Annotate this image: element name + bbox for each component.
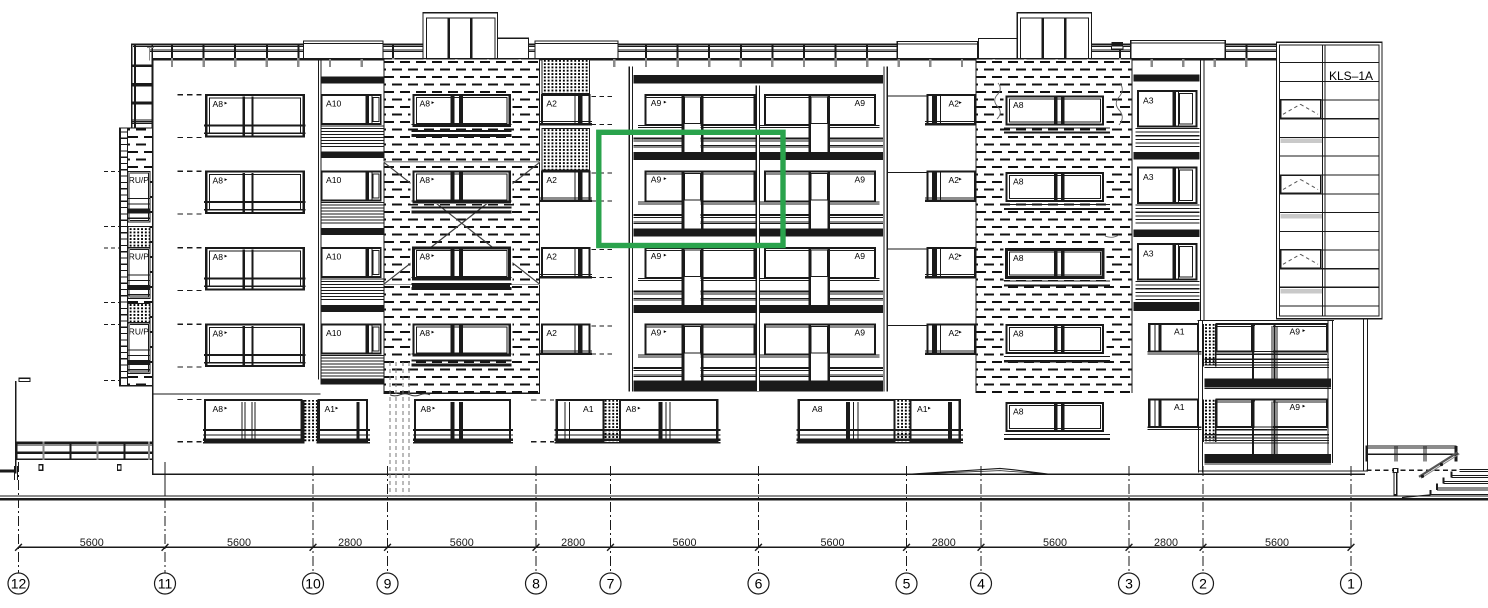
svg-text:A10: A10	[326, 252, 342, 262]
svg-text:A2: A2	[949, 99, 960, 109]
svg-text:A3: A3	[1143, 249, 1154, 259]
svg-text:A10: A10	[326, 99, 342, 109]
svg-text:A2: A2	[949, 328, 960, 338]
svg-text:▸: ▸	[928, 406, 931, 412]
svg-text:A3: A3	[1143, 96, 1154, 106]
svg-text:A8: A8	[421, 404, 432, 414]
svg-text:5600: 5600	[80, 537, 104, 549]
svg-text:A9: A9	[855, 175, 866, 185]
svg-text:11: 11	[158, 576, 173, 592]
svg-text:8: 8	[532, 576, 540, 592]
svg-text:A9: A9	[855, 328, 866, 338]
svg-text:▸: ▸	[664, 176, 667, 182]
svg-text:A8: A8	[213, 252, 224, 262]
svg-text:A8: A8	[1013, 100, 1024, 110]
svg-text:A10: A10	[326, 328, 342, 338]
svg-text:5600: 5600	[1043, 537, 1067, 549]
svg-text:A9: A9	[651, 98, 662, 108]
svg-text:3: 3	[1125, 576, 1133, 592]
svg-text:A10: A10	[326, 175, 342, 185]
svg-text:2800: 2800	[1154, 537, 1178, 549]
svg-text:2: 2	[1199, 576, 1207, 592]
svg-text:5600: 5600	[672, 537, 696, 549]
svg-text:A9: A9	[855, 98, 866, 108]
svg-text:A8: A8	[1013, 407, 1024, 417]
svg-text:2800: 2800	[338, 537, 362, 549]
svg-text:A8: A8	[213, 404, 224, 414]
svg-text:A2: A2	[546, 175, 557, 185]
svg-text:A1: A1	[1174, 327, 1185, 337]
svg-text:A8: A8	[420, 175, 431, 185]
svg-text:RU/P: RU/P	[129, 327, 149, 337]
svg-text:A9: A9	[651, 251, 662, 261]
svg-text:▸: ▸	[432, 330, 435, 336]
svg-text:A2: A2	[949, 175, 960, 185]
svg-text:A8: A8	[812, 404, 823, 414]
svg-text:A2: A2	[546, 99, 557, 109]
svg-text:5600: 5600	[1265, 537, 1289, 549]
svg-text:2800: 2800	[561, 537, 585, 549]
svg-text:10: 10	[305, 576, 321, 592]
svg-text:5: 5	[903, 576, 911, 592]
svg-text:A8: A8	[213, 176, 224, 186]
svg-text:A2: A2	[546, 328, 557, 338]
svg-text:▸: ▸	[432, 100, 435, 106]
svg-text:A8: A8	[213, 329, 224, 339]
svg-text:A1: A1	[917, 404, 928, 414]
svg-text:A9: A9	[855, 251, 866, 261]
svg-text:5600: 5600	[450, 537, 474, 549]
svg-text:4: 4	[977, 576, 985, 592]
svg-text:A9: A9	[651, 175, 662, 185]
svg-text:▸: ▸	[959, 253, 962, 259]
svg-text:▸: ▸	[225, 406, 228, 412]
svg-text:A8: A8	[213, 99, 224, 109]
svg-text:▸: ▸	[959, 100, 962, 106]
svg-text:A2: A2	[546, 252, 557, 262]
svg-text:▸: ▸	[959, 177, 962, 183]
svg-text:▸: ▸	[225, 101, 228, 107]
svg-text:A8: A8	[420, 328, 431, 338]
svg-text:A8: A8	[1013, 329, 1024, 339]
svg-text:5600: 5600	[820, 537, 844, 549]
svg-text:▸: ▸	[664, 329, 667, 335]
svg-text:▸: ▸	[959, 330, 962, 336]
svg-text:A1: A1	[1174, 402, 1185, 412]
svg-text:RU/P: RU/P	[129, 252, 149, 262]
svg-text:7: 7	[607, 576, 615, 592]
svg-text:▸: ▸	[664, 100, 667, 106]
svg-text:A2: A2	[949, 252, 960, 262]
svg-text:1: 1	[1347, 576, 1355, 592]
svg-text:A9: A9	[651, 328, 662, 338]
svg-text:A8: A8	[626, 404, 637, 414]
svg-text:A9: A9	[1290, 402, 1301, 412]
svg-text:A8: A8	[420, 99, 431, 109]
svg-text:12: 12	[11, 576, 27, 592]
svg-text:A1: A1	[325, 404, 336, 414]
svg-text:▸: ▸	[638, 406, 641, 412]
svg-text:▸: ▸	[432, 253, 435, 259]
svg-text:▸: ▸	[1303, 404, 1306, 410]
svg-text:▸: ▸	[336, 406, 339, 412]
svg-text:A8: A8	[1013, 253, 1024, 263]
svg-text:A1: A1	[583, 404, 594, 414]
svg-text:A8: A8	[420, 252, 431, 262]
svg-text:2800: 2800	[932, 537, 956, 549]
svg-text:▸: ▸	[1303, 328, 1306, 334]
svg-text:▸: ▸	[225, 177, 228, 183]
svg-text:▸: ▸	[225, 254, 228, 260]
svg-text:9: 9	[384, 576, 392, 592]
svg-text:KLS–1A: KLS–1A	[1329, 69, 1373, 83]
svg-text:6: 6	[755, 576, 763, 592]
svg-text:RU/P: RU/P	[129, 175, 149, 185]
svg-text:5600: 5600	[227, 537, 251, 549]
svg-text:A3: A3	[1143, 172, 1154, 182]
svg-text:▸: ▸	[432, 177, 435, 183]
svg-text:A8: A8	[1013, 177, 1024, 187]
svg-text:▸: ▸	[664, 253, 667, 259]
svg-text:A9: A9	[1290, 327, 1301, 337]
svg-text:▸: ▸	[225, 330, 228, 336]
svg-text:▸: ▸	[433, 406, 436, 412]
